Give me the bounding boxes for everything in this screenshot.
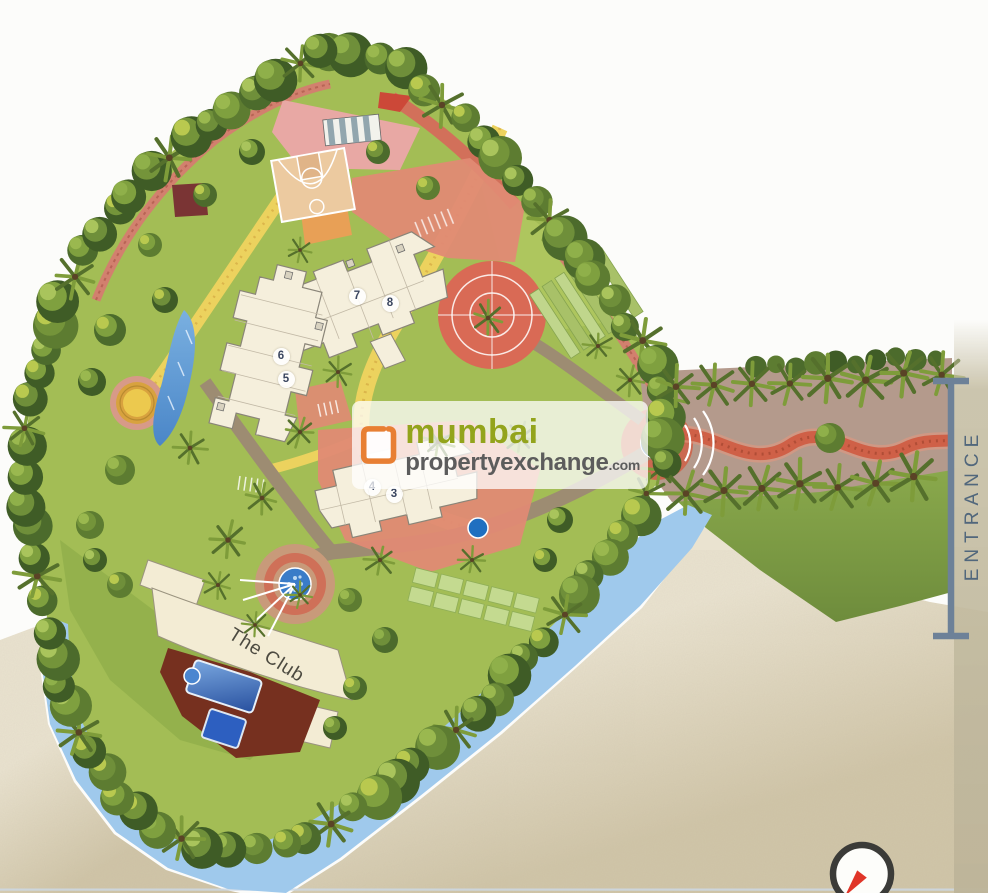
watermark-text: mumbai propertyexchange.com — [405, 415, 640, 476]
entrance-label: ENTRANCE — [962, 396, 986, 614]
building-7-label: 7 — [349, 288, 366, 305]
site-plan-page: 3 4 5 6 7 8 The Club ENTRANCE mumbai pro… — [0, 0, 988, 893]
watermark-tld: .com — [609, 457, 640, 473]
building-5-label: 5 — [278, 371, 295, 388]
building-6-label: 6 — [273, 348, 290, 365]
watermark: mumbai propertyexchange.com — [352, 401, 648, 489]
mumbai-property-exchange-logo — [360, 414, 397, 476]
building-8-label: 8 — [382, 295, 399, 312]
watermark-word1: mumbai — [405, 415, 640, 451]
watermark-word2: propertyexchange.com — [405, 450, 640, 475]
basketball-court — [271, 148, 355, 222]
compass-icon — [833, 845, 891, 893]
water-feature-dot — [468, 518, 488, 538]
